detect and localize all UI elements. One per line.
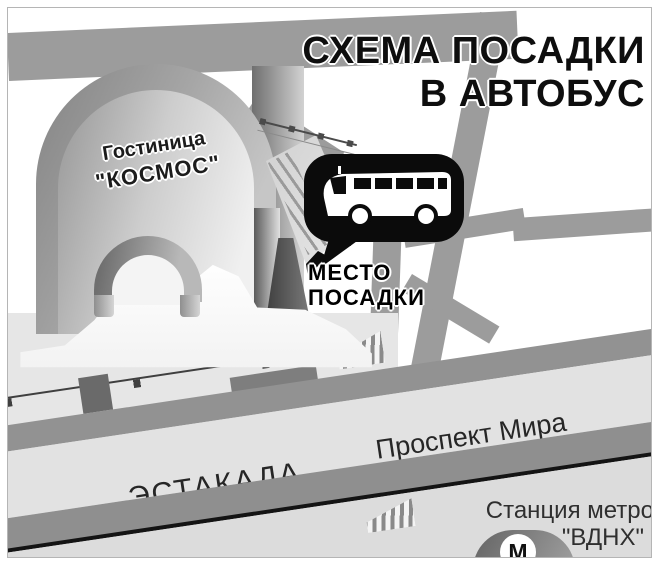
map-frame: ЭСТАКАДА Проспект Мира Гостиница "КОСМОС… xyxy=(7,7,652,558)
entrance-arch-leg xyxy=(180,295,200,317)
stairs-block-small xyxy=(78,374,113,414)
entrance-arch-leg xyxy=(94,295,114,317)
boarding-label: МЕСТО ПОСАДКИ xyxy=(308,261,425,310)
bus-callout xyxy=(294,146,474,278)
boarding-label-line2: ПОСАДКИ xyxy=(308,286,425,311)
station-label-line1: Станция метро xyxy=(486,497,652,524)
title-line1: СХЕМА ПОСАДКИ xyxy=(302,30,645,73)
page-title: СХЕМА ПОСАДКИ В АВТОБУС xyxy=(302,30,645,115)
boarding-label-line1: МЕСТО xyxy=(308,261,425,286)
metro-m-label: М xyxy=(508,539,527,559)
title-line2: В АВТОБУС xyxy=(302,73,645,116)
boarding-scheme: ЭСТАКАДА Проспект Мира Гостиница "КОСМОС… xyxy=(0,0,668,577)
road-right-branch xyxy=(512,208,652,241)
